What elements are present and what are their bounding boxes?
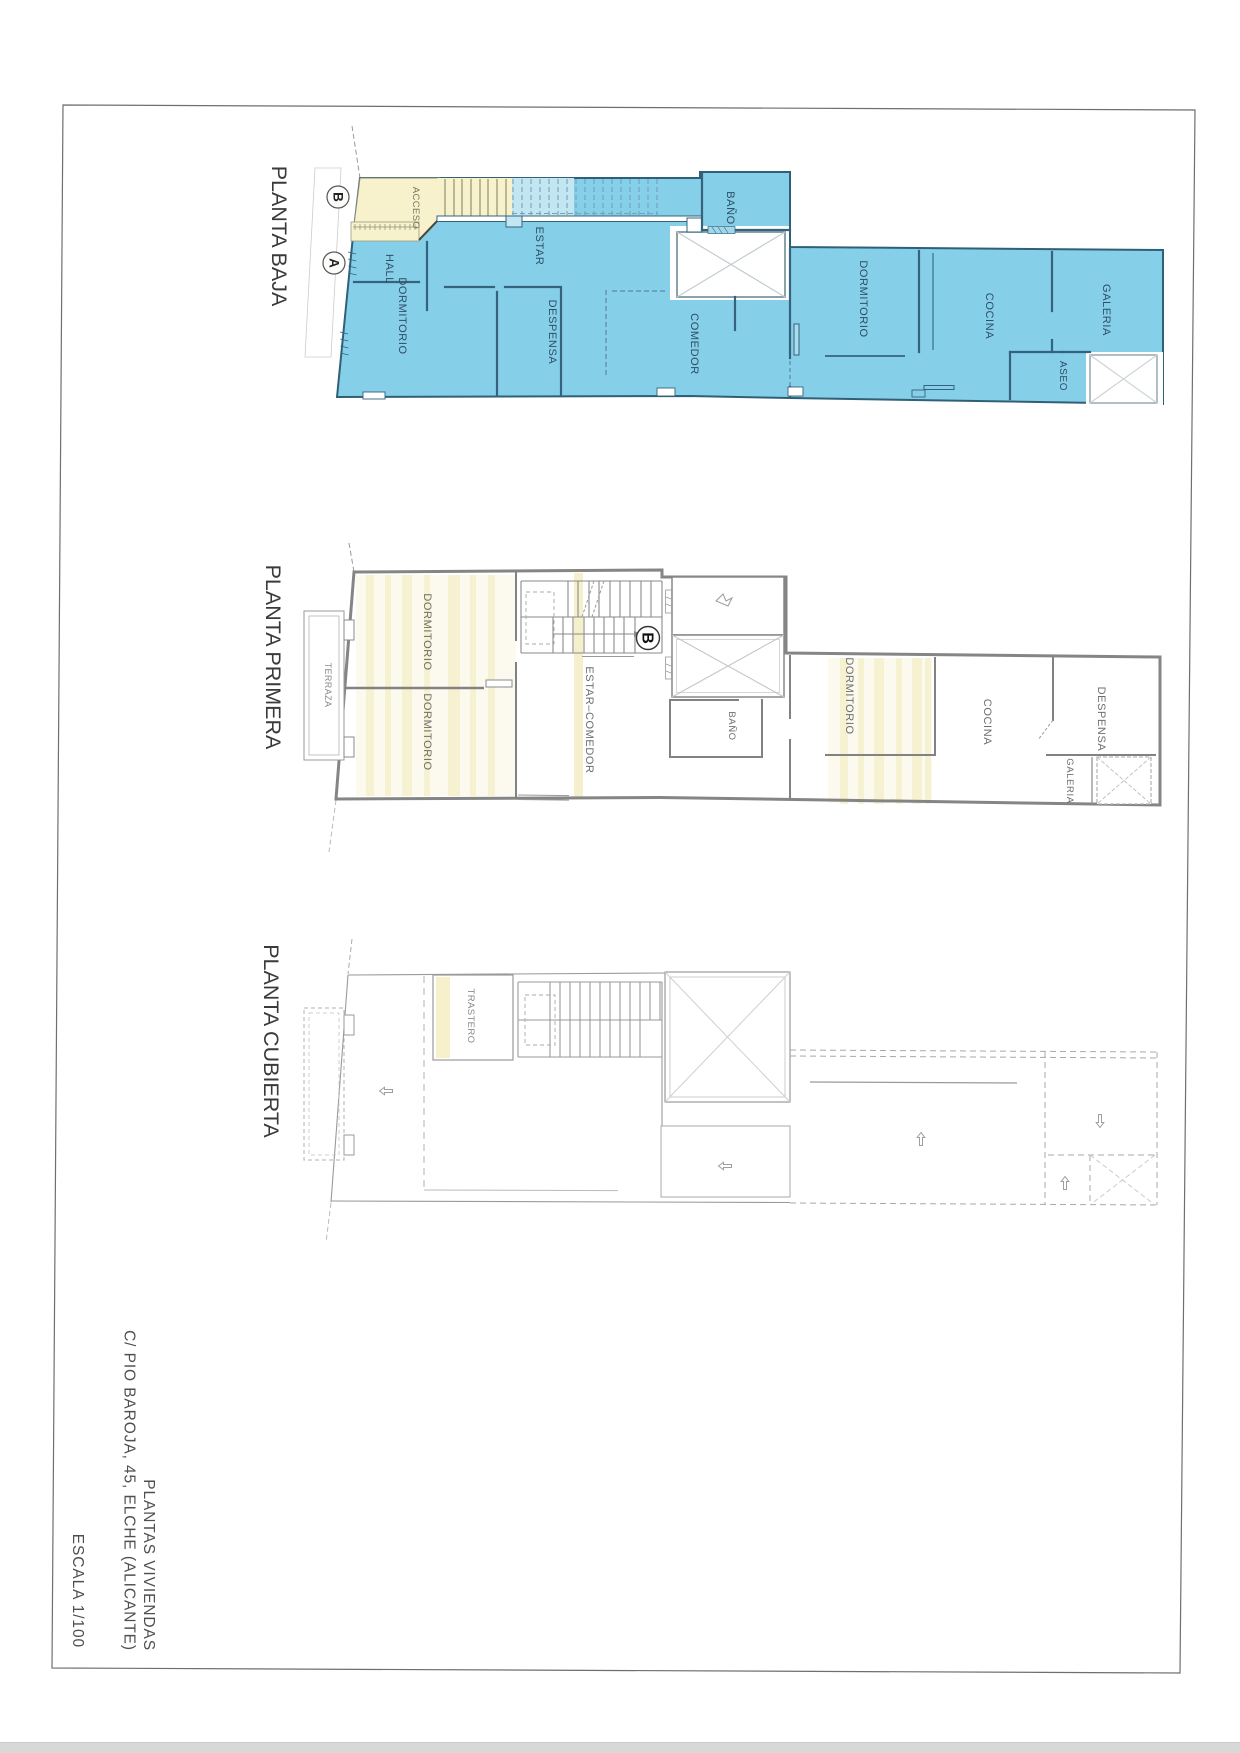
svg-text:COMEDOR: COMEDOR — [688, 313, 700, 375]
svg-text:DORMITORIO: DORMITORIO — [421, 593, 433, 670]
svg-text:DORMITORIO: DORMITORIO — [421, 693, 433, 770]
svg-text:GALERIA: GALERIA — [1064, 758, 1075, 803]
svg-text:DESPENSA: DESPENSA — [546, 300, 558, 365]
svg-text:PLANTAS VIVIENDAS: PLANTAS VIVIENDAS — [140, 1479, 157, 1651]
svg-text:PLANTA CUBIERTA: PLANTA CUBIERTA — [259, 944, 283, 1138]
svg-text:TRASTERO: TRASTERO — [465, 989, 476, 1044]
svg-text:BAÑO: BAÑO — [724, 191, 737, 225]
svg-text:ACCESO: ACCESO — [410, 187, 421, 230]
svg-text:B: B — [331, 192, 346, 202]
svg-text:ESCALA 1/100: ESCALA 1/100 — [69, 1534, 86, 1648]
svg-text:DORMITORIO: DORMITORIO — [857, 260, 869, 337]
svg-text:ESTAR–COMEDOR: ESTAR–COMEDOR — [583, 666, 595, 773]
svg-text:ASEO: ASEO — [1057, 361, 1068, 391]
svg-text:C/ PIO BAROJA, 45, ELCHE (ALIC: C/ PIO BAROJA, 45, ELCHE (ALICANTE) — [121, 1330, 138, 1651]
svg-text:COCINA: COCINA — [981, 699, 993, 745]
svg-text:GALERIA: GALERIA — [1100, 284, 1112, 336]
svg-text:DORMITORIO: DORMITORIO — [396, 277, 408, 354]
svg-text:A: A — [327, 258, 342, 268]
svg-text:B: B — [639, 632, 656, 644]
svg-text:BAÑO: BAÑO — [726, 711, 737, 740]
svg-text:ESTAR: ESTAR — [533, 227, 545, 266]
svg-text:PLANTA PRIMERA: PLANTA PRIMERA — [261, 565, 285, 750]
svg-text:HALL: HALL — [383, 254, 395, 284]
svg-text:PLANTA BAJA: PLANTA BAJA — [267, 166, 291, 307]
svg-text:TERRAZA: TERRAZA — [323, 663, 333, 708]
svg-text:COCINA: COCINA — [983, 293, 995, 339]
svg-text:DORMITORIO: DORMITORIO — [843, 657, 855, 734]
svg-text:DESPENSA: DESPENSA — [1095, 687, 1107, 752]
